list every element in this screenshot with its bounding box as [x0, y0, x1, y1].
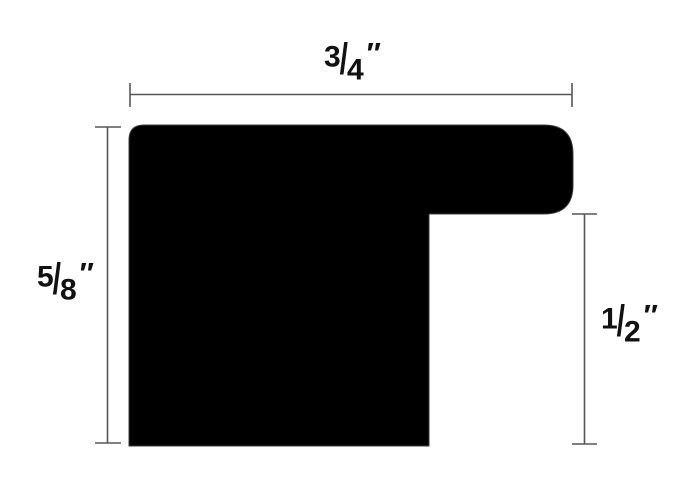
top-dimension-line	[130, 83, 572, 107]
right-dimension-inch-mark: ″	[644, 302, 657, 332]
top-dimension-denominator: 4	[347, 56, 364, 86]
top-dimension-slash: /	[340, 39, 348, 83]
right-dimension-numerator: 1	[601, 305, 618, 335]
right-dimension-denominator: 2	[624, 318, 641, 348]
left-dimension-denominator: 8	[60, 276, 77, 306]
right-dimension-label: 1 / 2 ″	[601, 305, 657, 348]
right-dimension-line	[572, 214, 597, 444]
left-dimension-label: 5 / 8 ″	[37, 263, 93, 306]
left-dimension-inch-mark: ″	[80, 260, 93, 290]
left-dimension-line	[95, 127, 121, 443]
right-dimension-slash: /	[617, 301, 625, 345]
top-dimension-label: 3 / 4 ″	[324, 43, 380, 86]
top-dimension-numerator: 3	[324, 43, 341, 73]
moulding-profile-shape	[129, 125, 573, 446]
diagram-canvas: 3 / 4 ″ 5 / 8 ″ 1 / 2 ″	[0, 0, 700, 500]
left-dimension-numerator: 5	[37, 263, 54, 293]
top-dimension-inch-mark: ″	[367, 40, 380, 70]
left-dimension-slash: /	[53, 259, 61, 303]
